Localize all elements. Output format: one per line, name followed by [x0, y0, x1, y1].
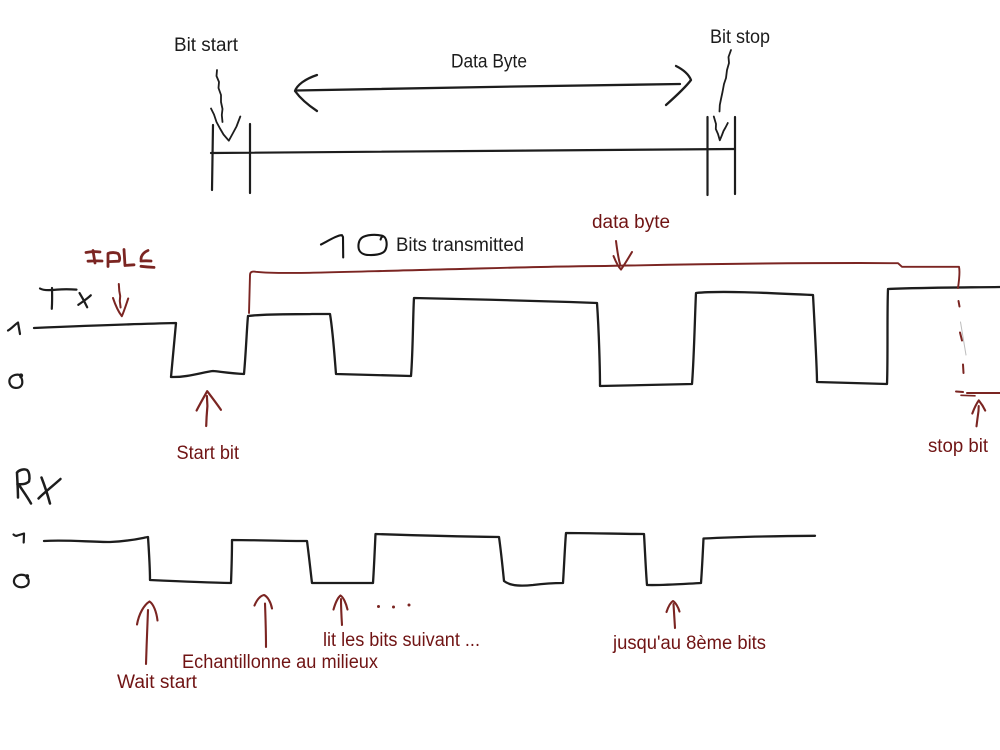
- svg-text:data byte: data byte: [592, 212, 670, 233]
- svg-text:Bits transmitted: Bits transmitted: [396, 235, 524, 256]
- svg-text:Bit start: Bit start: [174, 35, 239, 56]
- svg-text:Echantillonne au milieux: Echantillonne au milieux: [182, 652, 378, 673]
- svg-text:lit les bits suivant ...: lit les bits suivant ...: [323, 630, 480, 651]
- svg-text:stop bit: stop bit: [928, 436, 989, 457]
- svg-text:Data Byte: Data Byte: [451, 52, 527, 73]
- svg-text:jusqu'au 8ème bits: jusqu'au 8ème bits: [612, 633, 766, 654]
- svg-text:Start bit: Start bit: [177, 443, 240, 464]
- svg-text:Bit stop: Bit stop: [710, 27, 770, 48]
- svg-text:Wait start: Wait start: [117, 672, 198, 693]
